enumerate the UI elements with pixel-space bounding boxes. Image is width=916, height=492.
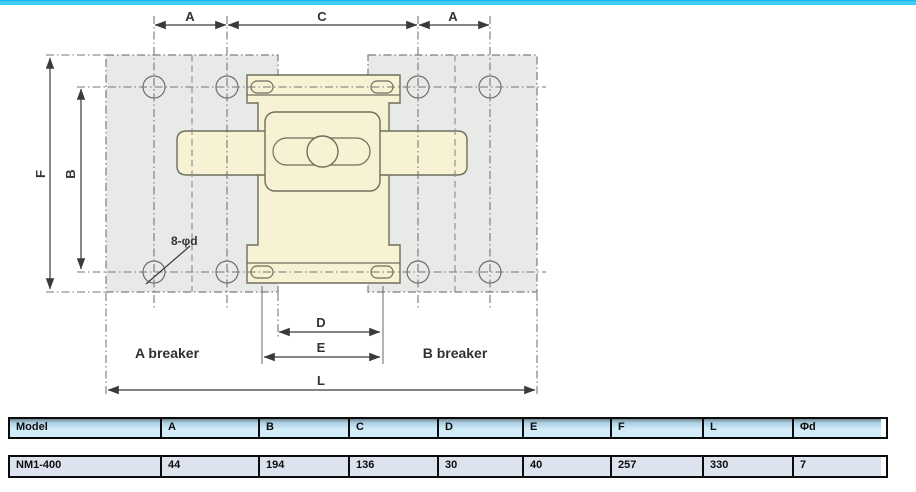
dimension-table-row: NM1-400 44 194 136 30 40 257 330 7 (8, 455, 888, 478)
header-e: E (524, 419, 612, 437)
dim-label-e: E (317, 340, 326, 355)
toggle-handle (307, 136, 338, 167)
dim-label-a-left: A (185, 9, 195, 24)
header-d: D (439, 419, 524, 437)
header-a: A (162, 419, 260, 437)
top-accent-bar (0, 0, 916, 5)
right-arm (379, 131, 467, 175)
dim-label-b: B (63, 169, 78, 178)
cell-phid: 7 (794, 457, 886, 476)
breaker-a-label: A breaker (135, 345, 200, 361)
header-phid: Φd (794, 419, 886, 437)
left-arm (177, 131, 266, 175)
header-c: C (350, 419, 439, 437)
dim-label-f: F (33, 170, 48, 178)
cell-model: NM1-400 (10, 457, 162, 476)
header-b: B (260, 419, 350, 437)
cell-d: 30 (439, 457, 524, 476)
cell-a: 44 (162, 457, 260, 476)
cell-b: 194 (260, 457, 350, 476)
cell-c: 136 (350, 457, 439, 476)
dim-label-a-right: A (448, 9, 458, 24)
cell-f: 257 (612, 457, 704, 476)
holes-annotation: 8-φd (171, 234, 198, 248)
header-f: F (612, 419, 704, 437)
cell-l: 330 (704, 457, 794, 476)
dim-label-l: L (317, 373, 325, 388)
breaker-b-label: B breaker (423, 345, 488, 361)
dim-label-c: C (317, 9, 327, 24)
header-model: Model (10, 419, 162, 437)
dimension-table-header: Model A B C D E F L Φd (8, 417, 888, 439)
dim-label-d: D (316, 315, 325, 330)
breaker-mounting-diagram: A C A F B D E L 8-φd A breaker B breaker (0, 0, 916, 410)
header-l: L (704, 419, 794, 437)
page: A C A F B D E L 8-φd A breaker B breaker… (0, 0, 916, 492)
cell-e: 40 (524, 457, 612, 476)
